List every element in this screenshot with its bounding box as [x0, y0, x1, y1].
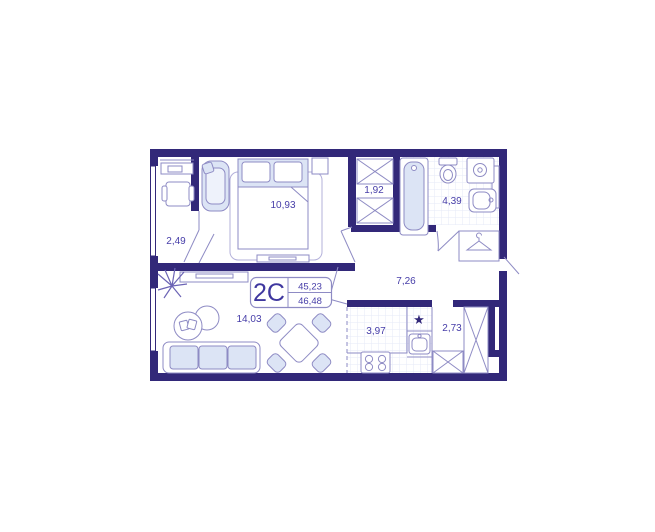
room-label-closet: 1,92: [364, 185, 384, 196]
toilet-icon: [439, 158, 457, 183]
floorplan-canvas: ★: [0, 0, 655, 532]
unit-area-bottom: 46,48: [298, 296, 322, 307]
room-label-hallway: 7,26: [396, 276, 416, 287]
room-label-living: 14,03: [236, 314, 261, 325]
room-label-wardrobe: 2,73: [442, 323, 462, 334]
unit-badge: 2C 45,23 46,48: [251, 278, 332, 308]
wardrobe-icon: [432, 307, 488, 373]
bathroom-sink-icon: [469, 189, 496, 212]
bathroom-door: [437, 231, 459, 251]
room-label-bathroom: 4,39: [442, 196, 462, 207]
dresser-icon: [257, 255, 309, 262]
bedroom-door: [341, 227, 355, 262]
nightstand-icon: [312, 158, 328, 174]
desk-icon: [160, 160, 194, 174]
armchair-icon: [174, 312, 202, 340]
room-label-bedroom: 10,93: [270, 200, 295, 211]
washing-machine-icon: [467, 158, 494, 183]
chair-icon: [162, 182, 194, 206]
hallway-closet: [459, 231, 499, 261]
chaise-icon: [202, 161, 229, 211]
sofa-icon: [163, 342, 260, 373]
window-left-top: [151, 166, 156, 256]
bathtub-icon: [400, 158, 428, 235]
floorplan-drawing: ★: [0, 0, 655, 532]
window-left-bottom: [151, 288, 156, 351]
room-label-loggia: 2,49: [166, 236, 186, 247]
loggia-door-lines: [184, 211, 214, 263]
kitchen-sink-icon: [409, 334, 430, 354]
unit-area-top: 45,23: [298, 282, 322, 293]
room-label-kitchen: 3,97: [366, 326, 386, 337]
star-icon: ★: [413, 313, 425, 328]
unit-type-label: 2C: [253, 279, 285, 307]
tv-console-icon: [180, 272, 248, 282]
stove-icon: [361, 352, 390, 373]
dining-table-icon: [266, 312, 333, 374]
